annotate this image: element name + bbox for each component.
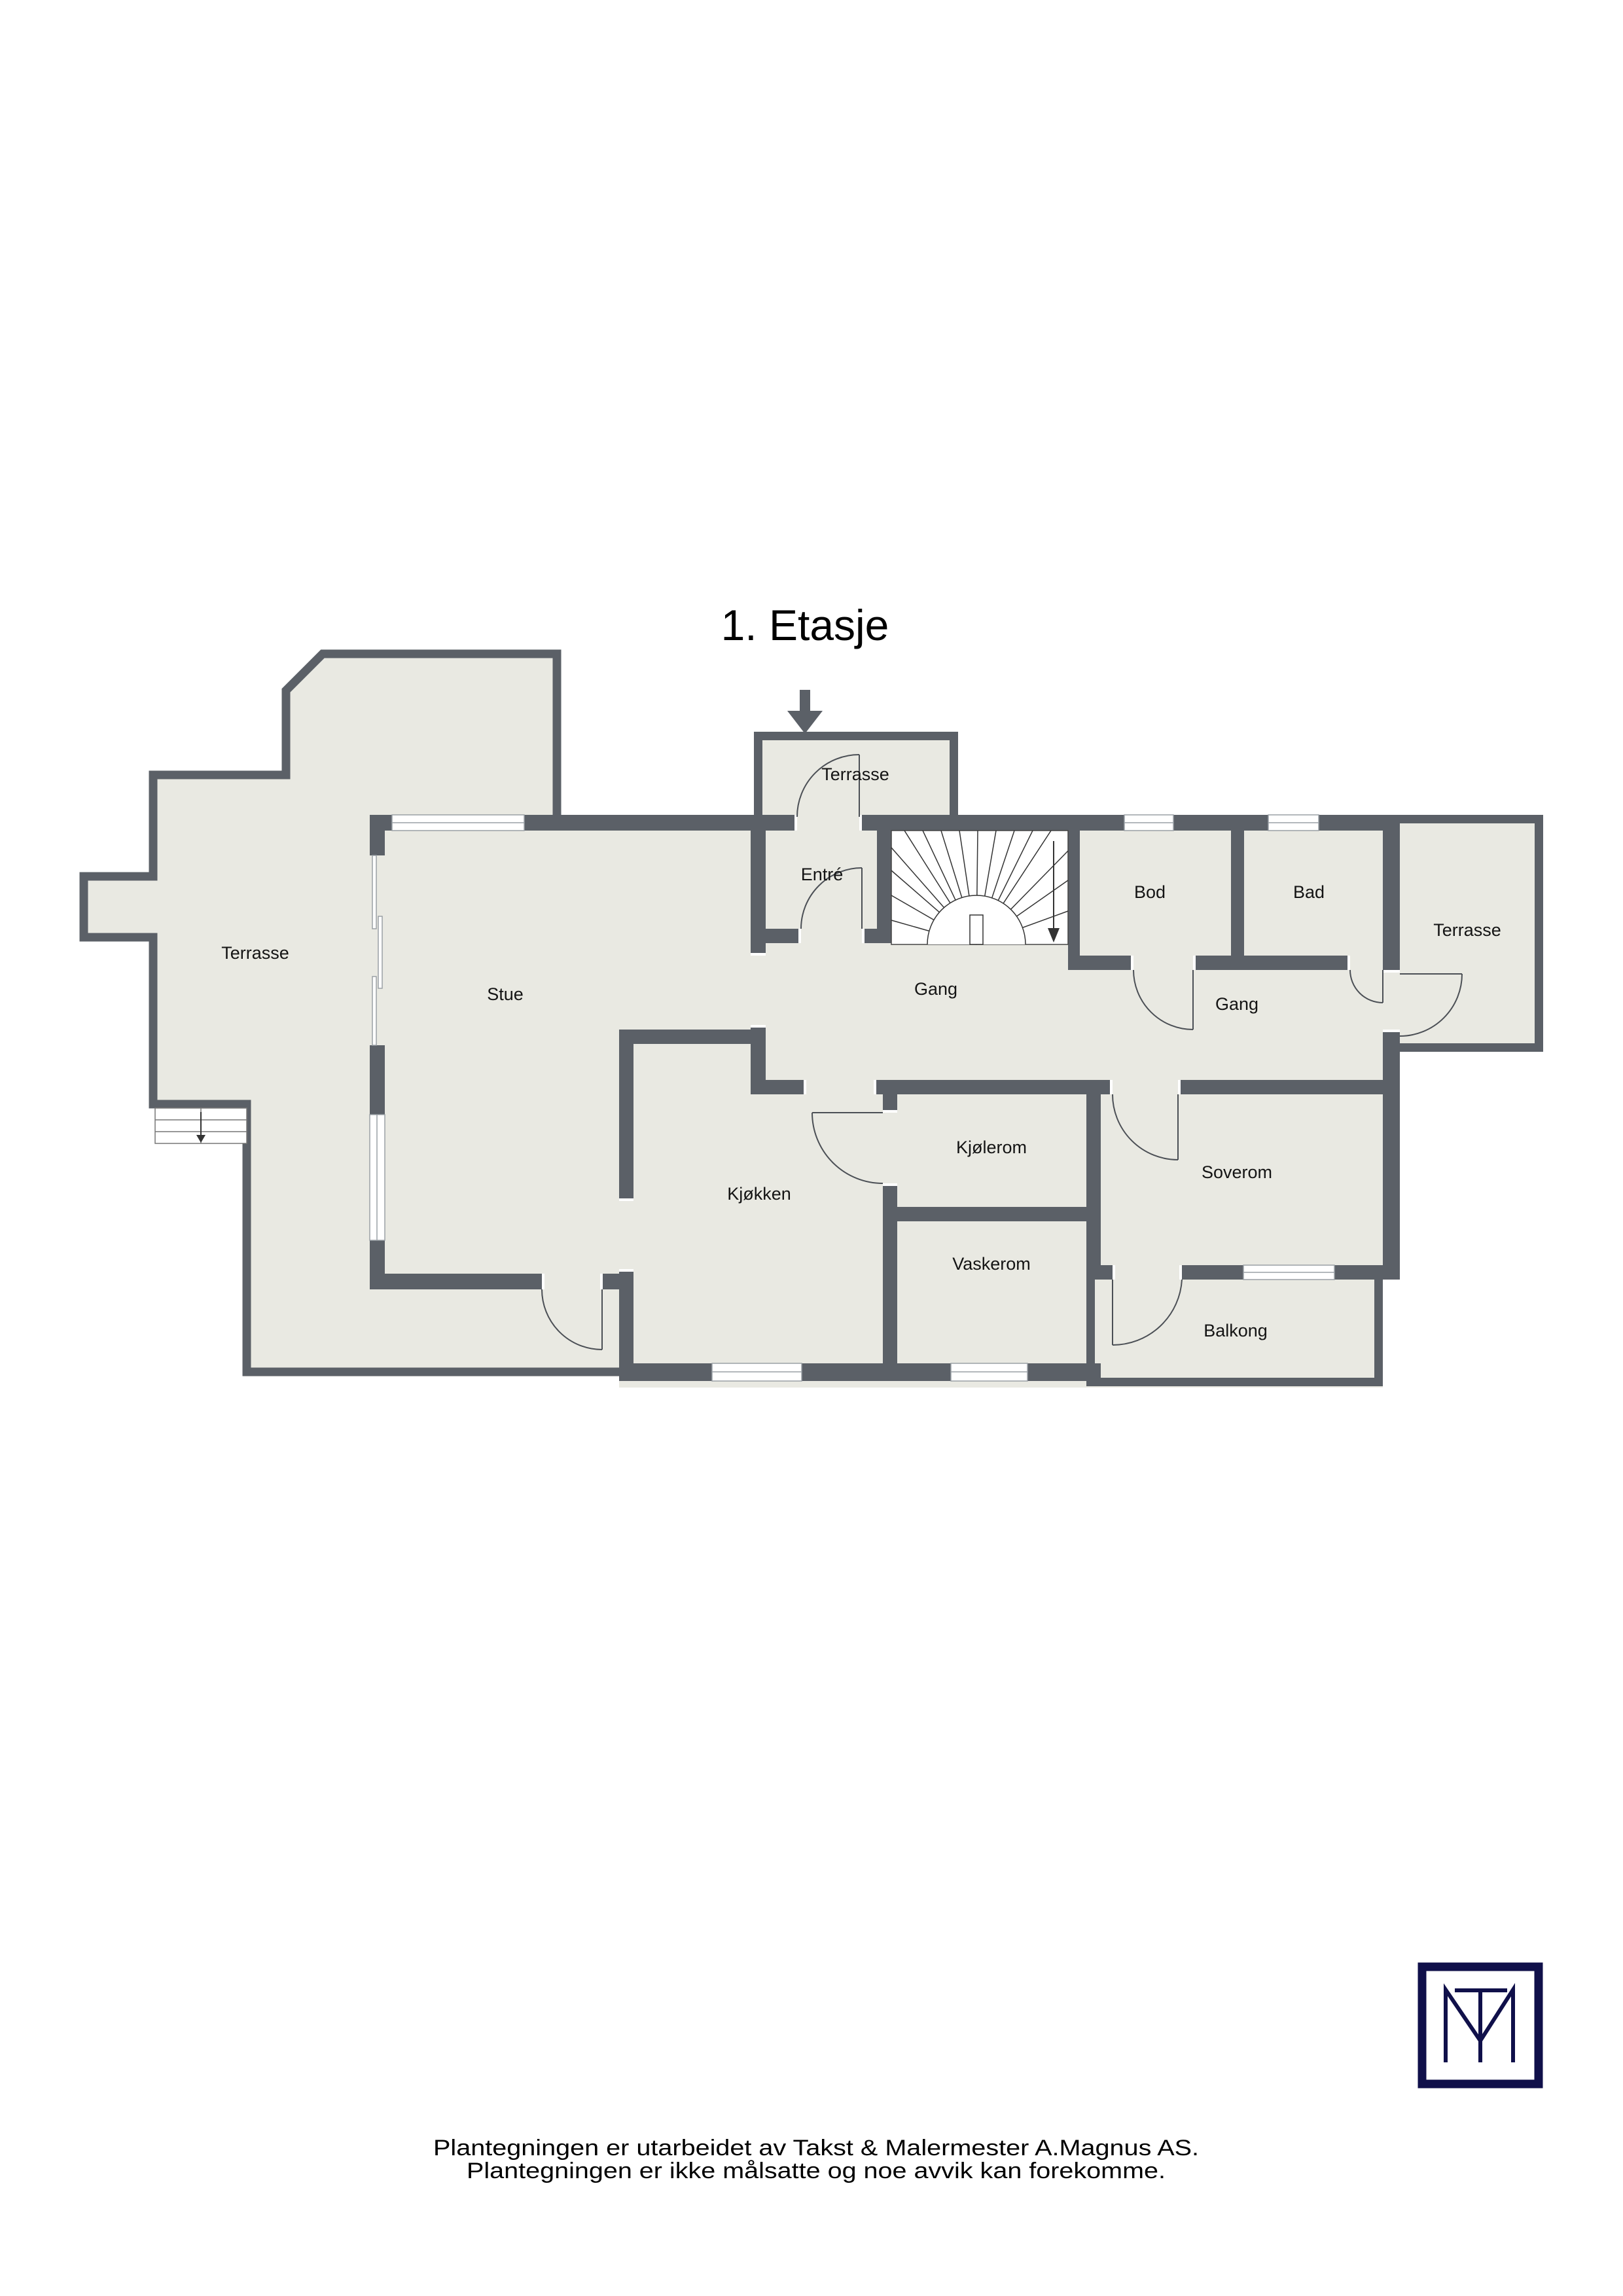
footer-line-2: Plantegningen er ikke målsatte og noe av…: [467, 2159, 1166, 2183]
takst-malermester-logo: [1422, 1967, 1539, 2084]
room-label-gang-mid: Gang: [914, 979, 957, 999]
floorplan-page: 1. Etasje: [0, 0, 1623, 2296]
entry-direction-arrow-icon: [787, 690, 823, 734]
window: [712, 1363, 802, 1381]
window: [1124, 815, 1173, 831]
window: [392, 815, 524, 831]
room-label-bod: Bod: [1134, 882, 1166, 902]
room-label-vaskerom: Vaskerom: [952, 1254, 1031, 1274]
room-label-terrasse-top: Terrasse: [821, 764, 889, 784]
room-label-bad: Bad: [1293, 882, 1325, 902]
room-label-terrasse-left: Terrasse: [221, 943, 289, 963]
window: [951, 1363, 1027, 1381]
page-title: 1. Etasje: [721, 601, 889, 649]
room-label-kjokken: Kjøkken: [727, 1184, 791, 1204]
window: [1268, 815, 1319, 831]
floorplan-drawing: 1. Etasje: [0, 0, 1623, 2296]
window: [1243, 1265, 1334, 1280]
room-label-soverom: Soverom: [1202, 1162, 1272, 1182]
window: [370, 1115, 385, 1240]
room-label-kjolerom: Kjølerom: [956, 1138, 1027, 1157]
room-label-stue: Stue: [487, 984, 524, 1004]
logo-monogram-TM: [1446, 1990, 1513, 2062]
footer-line-1: Plantegningen er utarbeidet av Takst & M…: [433, 2136, 1199, 2161]
room-label-terrasse-right: Terrasse: [1433, 920, 1501, 940]
room-label-entre: Entré: [801, 865, 844, 884]
room-label-gang-right: Gang: [1215, 994, 1258, 1014]
room-label-balkong: Balkong: [1204, 1321, 1268, 1340]
terrace-steps: [155, 1108, 247, 1143]
staircase: [891, 831, 1068, 944]
